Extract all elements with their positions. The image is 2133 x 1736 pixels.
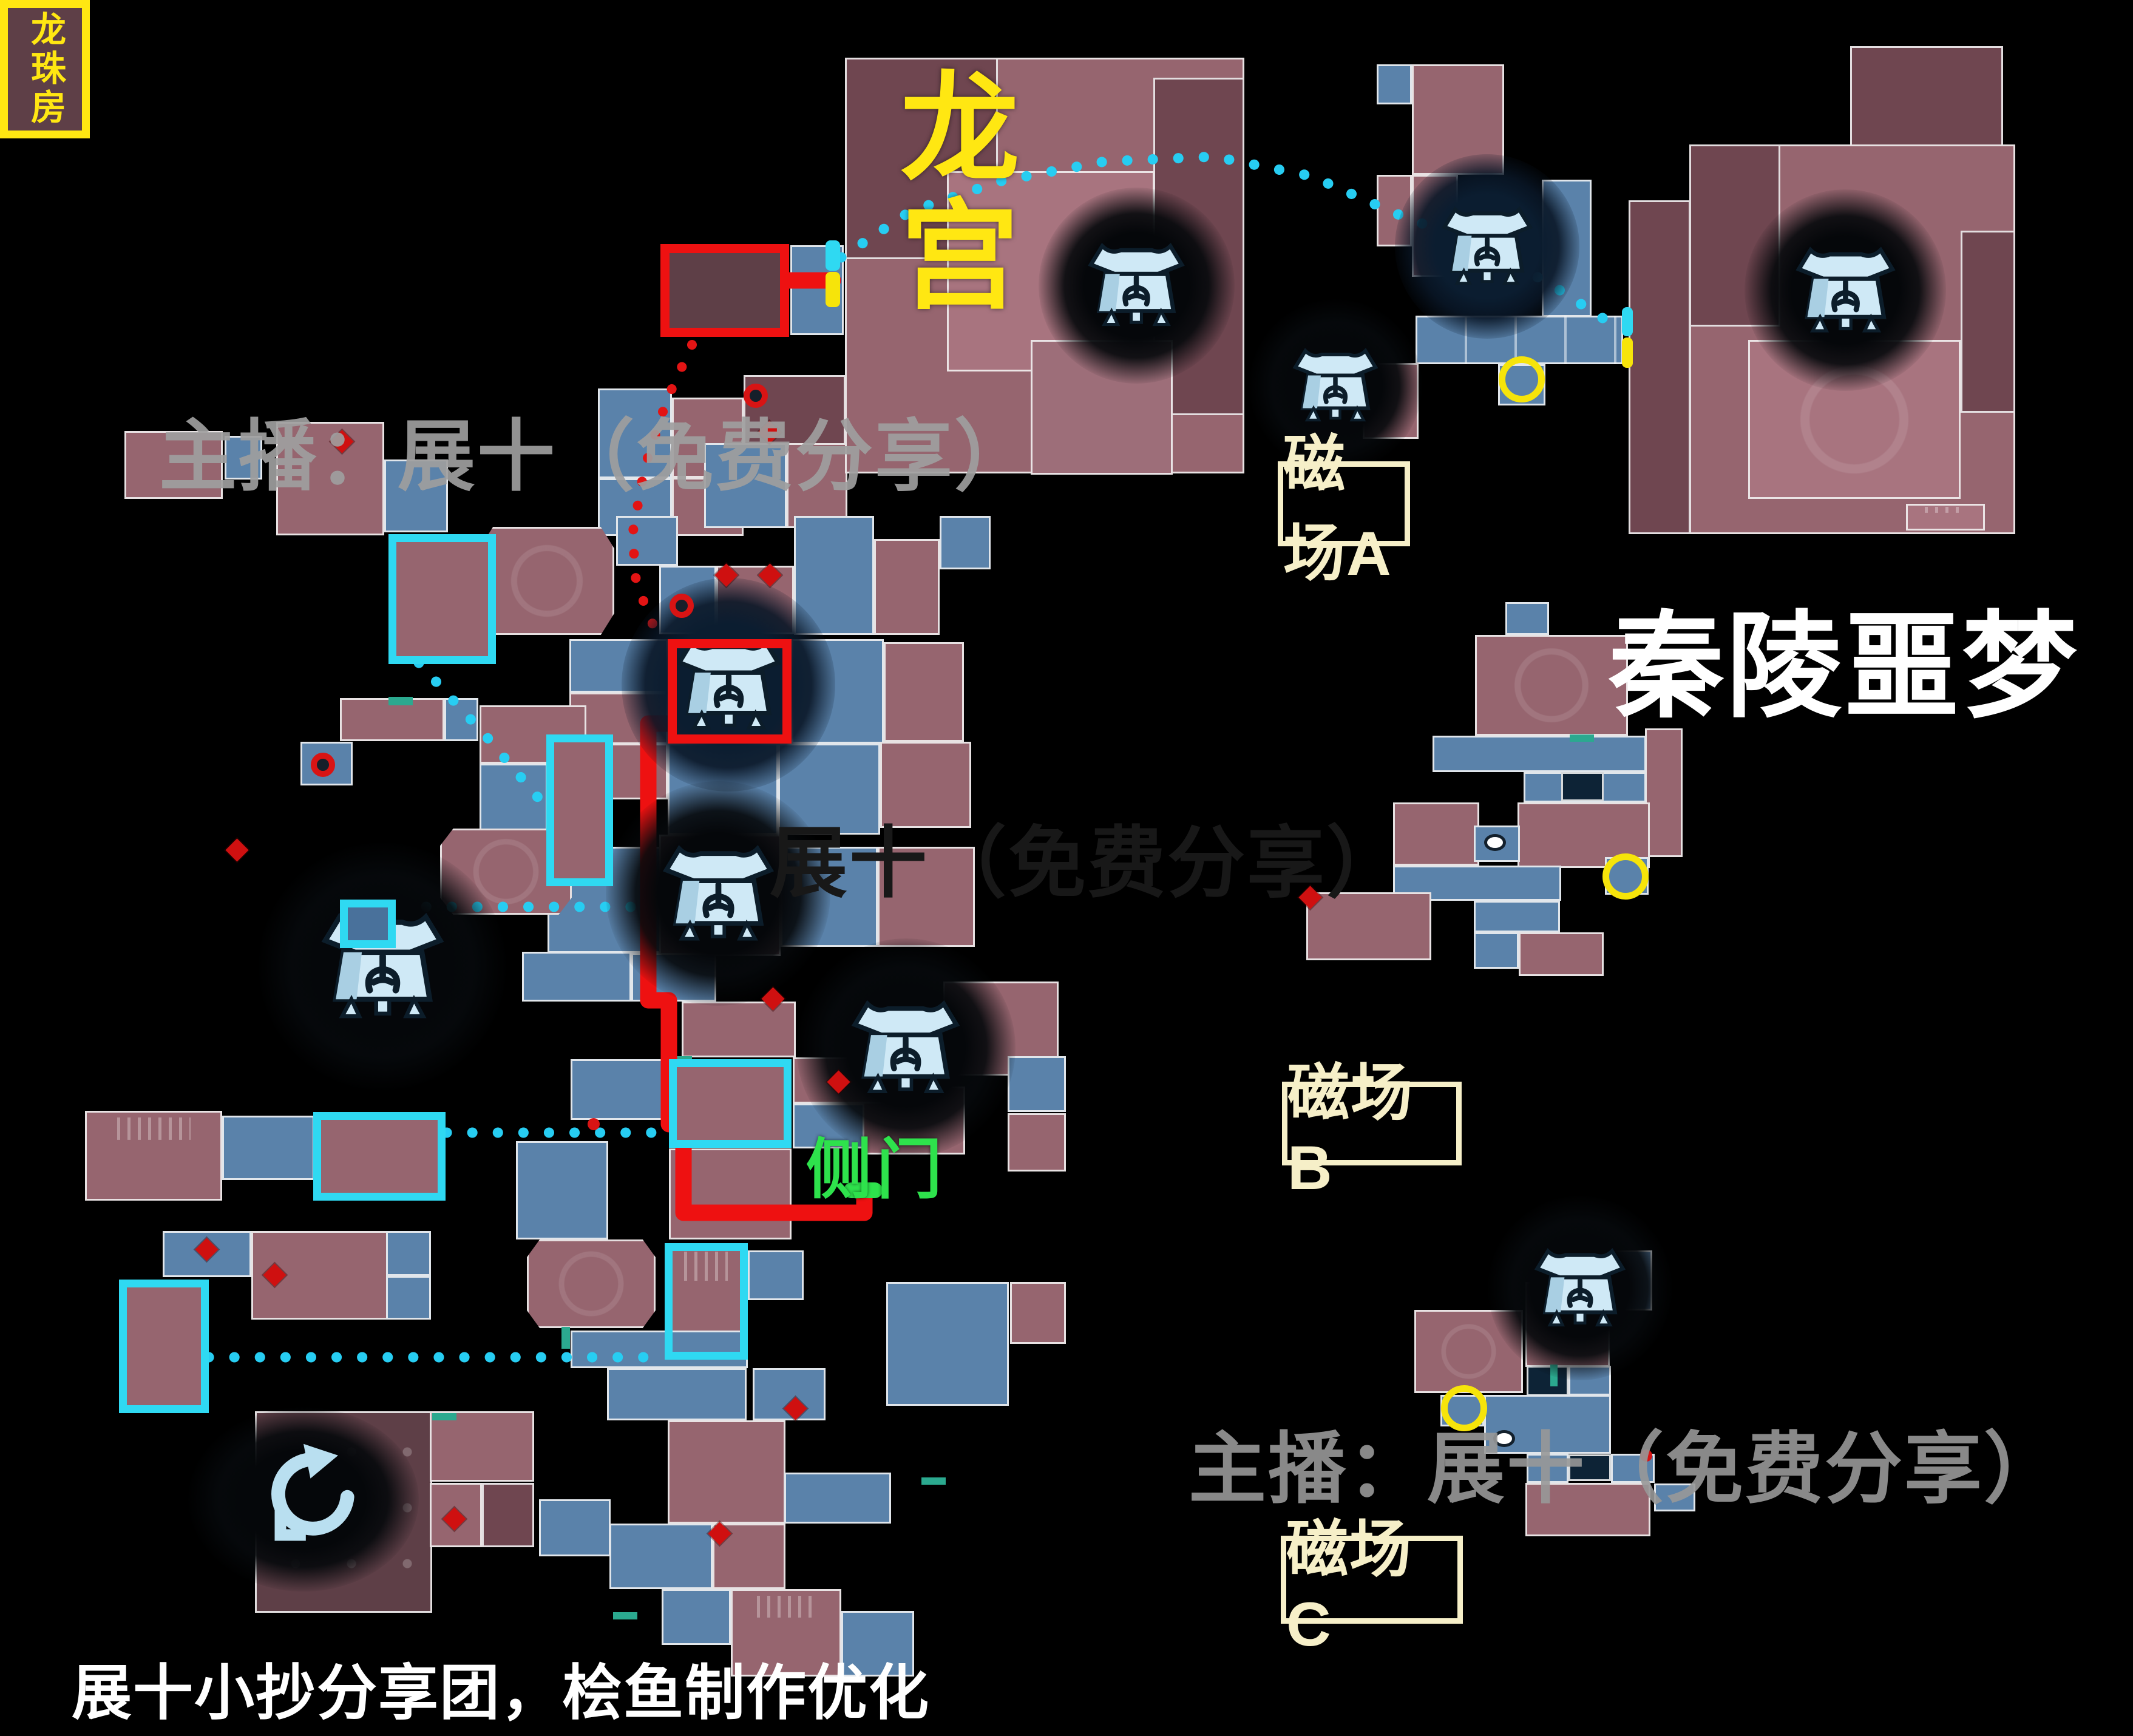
map-guide-canvas: 龙宫 秦陵噩梦 磁场A 磁场B 磁场C 龙珠房 侧门 主播：展十（免费分享） 展… [0, 0, 2133, 1736]
watermark-streamer-top: 主播：展十（免费分享） [159, 393, 1034, 506]
cyan-highlight-box [669, 1059, 792, 1148]
yellow-door-marker [826, 272, 840, 307]
magnetic-field-a-text: 磁场A [1283, 415, 1405, 593]
watermark-streamer-middle: 展十（免费分享） [770, 800, 1406, 912]
magnetic-field-c-label: 磁场C [1281, 1536, 1463, 1624]
yellow-circle-marker [1602, 853, 1649, 900]
entrance-arrow-icon [246, 1442, 361, 1557]
magnetic-field-c-text: 磁场C [1286, 1500, 1457, 1660]
treasure-chest-icon [1531, 1239, 1629, 1337]
dragon-palace-title: 龙宫 [887, 66, 1011, 320]
treasure-chest-icon [848, 990, 963, 1105]
cyan-door-marker [826, 240, 840, 271]
red-ring-marker [311, 753, 335, 777]
treasure-chest-icon [1439, 198, 1536, 295]
cyan-highlight-box [665, 1243, 748, 1360]
cyan-highlight-box [313, 1112, 446, 1201]
cyan-door-marker [1622, 307, 1633, 336]
cyan-highlight-box [340, 900, 396, 948]
cyan-route-dotted [419, 663, 546, 807]
treasure-chest-icon [1792, 237, 1899, 344]
yellow-circle-marker [1499, 356, 1545, 402]
cyan-highlight-box [546, 734, 613, 886]
magnetic-field-b-text: 磁场B [1287, 1043, 1456, 1204]
magnetic-field-a-label: 磁场A [1278, 461, 1410, 546]
tomb-nightmare-title: 秦陵噩梦 [1609, 573, 2080, 740]
treasure-chest-icon [1085, 234, 1188, 337]
eye-marker [1484, 834, 1506, 851]
red-ring-marker [670, 594, 694, 618]
yellow-door-marker [1622, 337, 1633, 368]
side-door-label: 侧门 [806, 1117, 947, 1212]
red-highlight-box [668, 639, 792, 744]
magnetic-field-b-label: 磁场B [1282, 1082, 1462, 1165]
cyan-highlight-box [119, 1280, 209, 1413]
red-highlight-box [660, 244, 789, 337]
footer-credit-text: 展十小抄分享团，桧鱼制作优化 [72, 1644, 930, 1731]
treasure-chest-icon [659, 835, 778, 953]
red-dot-marker [588, 1118, 600, 1130]
cyan-highlight-box [388, 534, 496, 664]
